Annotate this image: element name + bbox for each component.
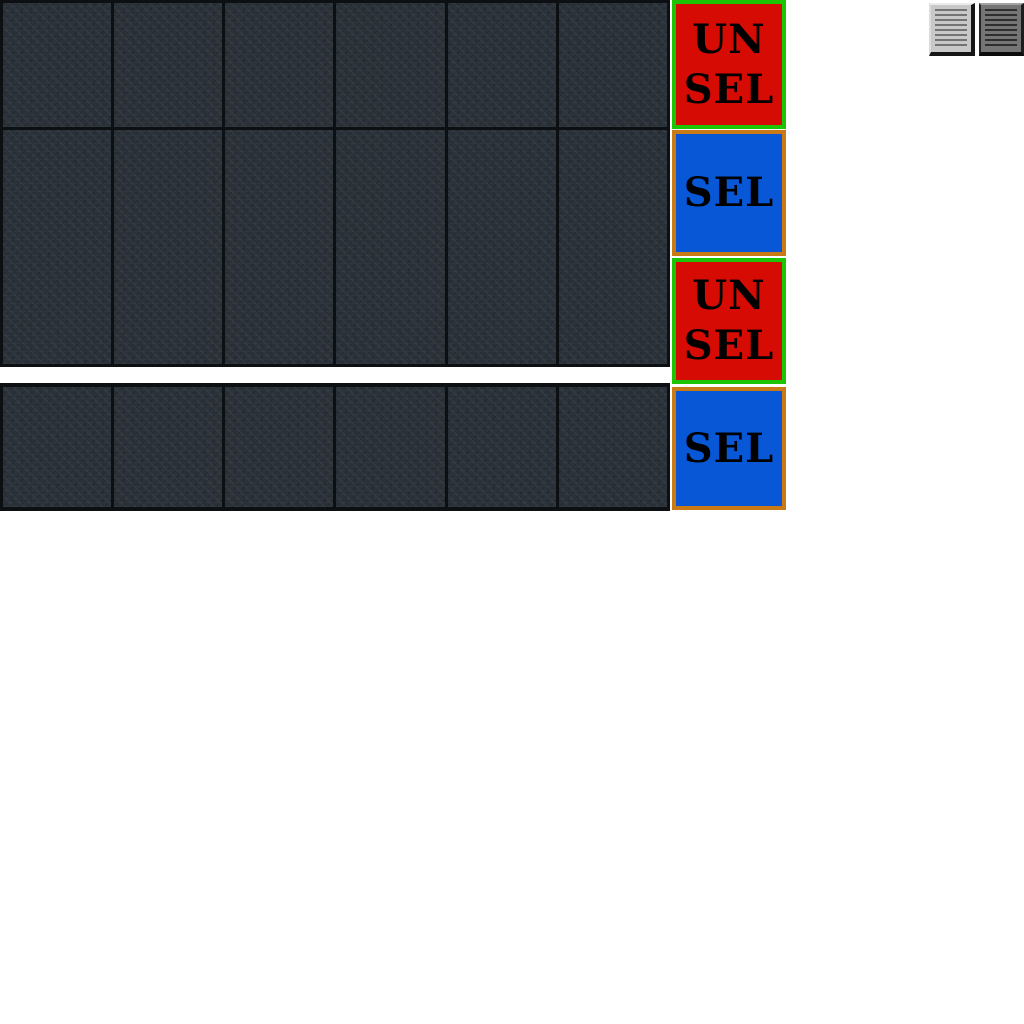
row-1-toggle-label-line2: SEL — [684, 65, 775, 115]
texture-tile[interactable] — [336, 3, 444, 127]
tile-grid-rows-2-3 — [0, 130, 670, 367]
texture-tile[interactable] — [114, 387, 222, 507]
texture-tile[interactable] — [448, 3, 556, 127]
texture-tile[interactable] — [3, 3, 111, 127]
row-1-toggle[interactable]: UN SEL — [672, 0, 786, 129]
texture-tile[interactable] — [114, 130, 222, 364]
texture-tile[interactable] — [114, 3, 222, 127]
canvas: UN SEL SEL UN SEL SEL — [0, 0, 1024, 1024]
lined-page-light-icon[interactable] — [929, 3, 975, 56]
row-2-toggle-label: SEL — [684, 168, 775, 218]
lined-page-dark-icon-stripes — [985, 9, 1017, 49]
texture-tile[interactable] — [3, 387, 111, 507]
lined-page-light-icon-stripes — [935, 9, 967, 49]
texture-tile[interactable] — [225, 387, 333, 507]
tile-grid-row-4 — [0, 383, 670, 511]
texture-tile[interactable] — [225, 3, 333, 127]
row-3-toggle[interactable]: UN SEL — [672, 258, 786, 384]
texture-tile[interactable] — [559, 130, 667, 364]
row-4-toggle-label: SEL — [684, 424, 775, 474]
row-4-toggle[interactable]: SEL — [672, 387, 786, 510]
lined-page-dark-icon[interactable] — [979, 3, 1024, 56]
row-1-toggle-label-line1: UN — [692, 15, 765, 65]
texture-tile[interactable] — [448, 130, 556, 364]
row-3-toggle-label-line2: SEL — [684, 321, 775, 371]
row-2-toggle[interactable]: SEL — [672, 130, 786, 256]
texture-tile[interactable] — [448, 387, 556, 507]
tile-grid-row-1 — [0, 0, 670, 130]
texture-tile[interactable] — [3, 130, 111, 364]
texture-tile[interactable] — [336, 387, 444, 507]
texture-tile[interactable] — [336, 130, 444, 364]
row-3-toggle-label-line1: UN — [692, 271, 765, 321]
texture-tile[interactable] — [225, 130, 333, 364]
texture-tile[interactable] — [559, 387, 667, 507]
texture-tile[interactable] — [559, 3, 667, 127]
